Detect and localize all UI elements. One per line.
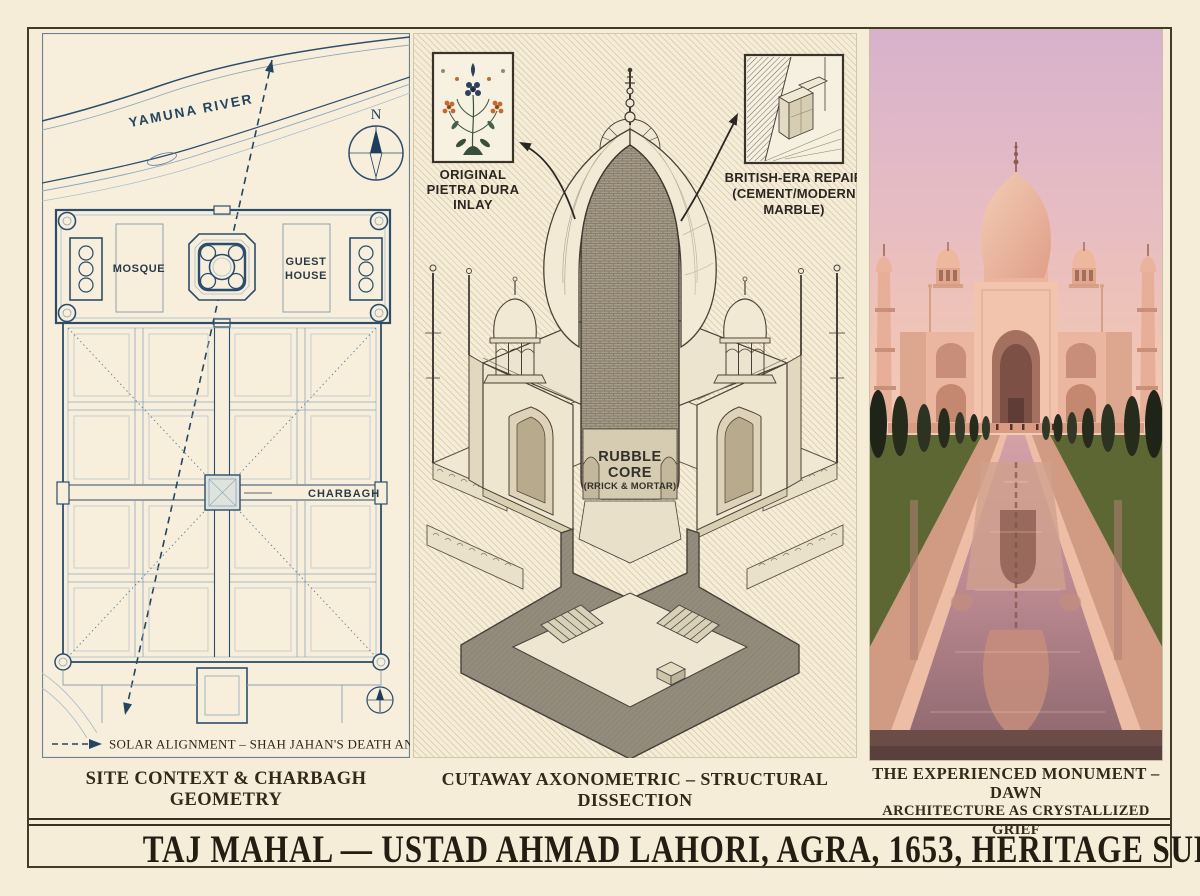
poster-frame — [27, 27, 1172, 868]
heritage-survey-poster: YAMUNA RIVER N — [0, 0, 1200, 896]
